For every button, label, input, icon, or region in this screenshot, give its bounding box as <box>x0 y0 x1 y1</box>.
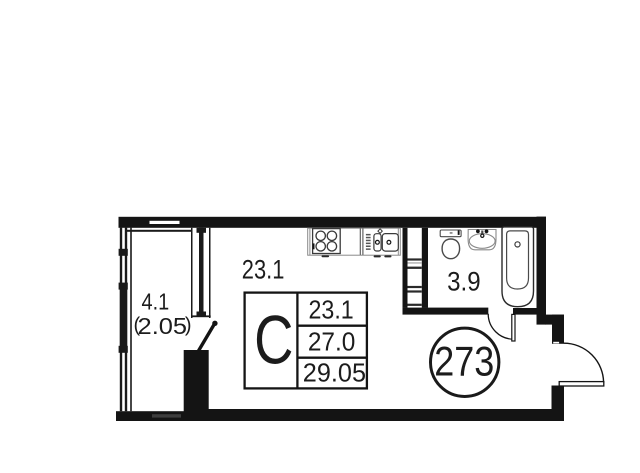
svg-text:3.9: 3.9 <box>447 267 481 297</box>
svg-text:27.0: 27.0 <box>308 327 356 357</box>
svg-text:29.05: 29.05 <box>303 358 366 388</box>
svg-text:С: С <box>254 302 293 379</box>
svg-text:): ) <box>185 315 192 337</box>
svg-text:23.1: 23.1 <box>242 254 285 284</box>
svg-text:23.1: 23.1 <box>309 295 354 325</box>
svg-text:273: 273 <box>434 338 494 385</box>
svg-text:4.1: 4.1 <box>142 288 170 314</box>
svg-text:2.05: 2.05 <box>138 313 188 339</box>
